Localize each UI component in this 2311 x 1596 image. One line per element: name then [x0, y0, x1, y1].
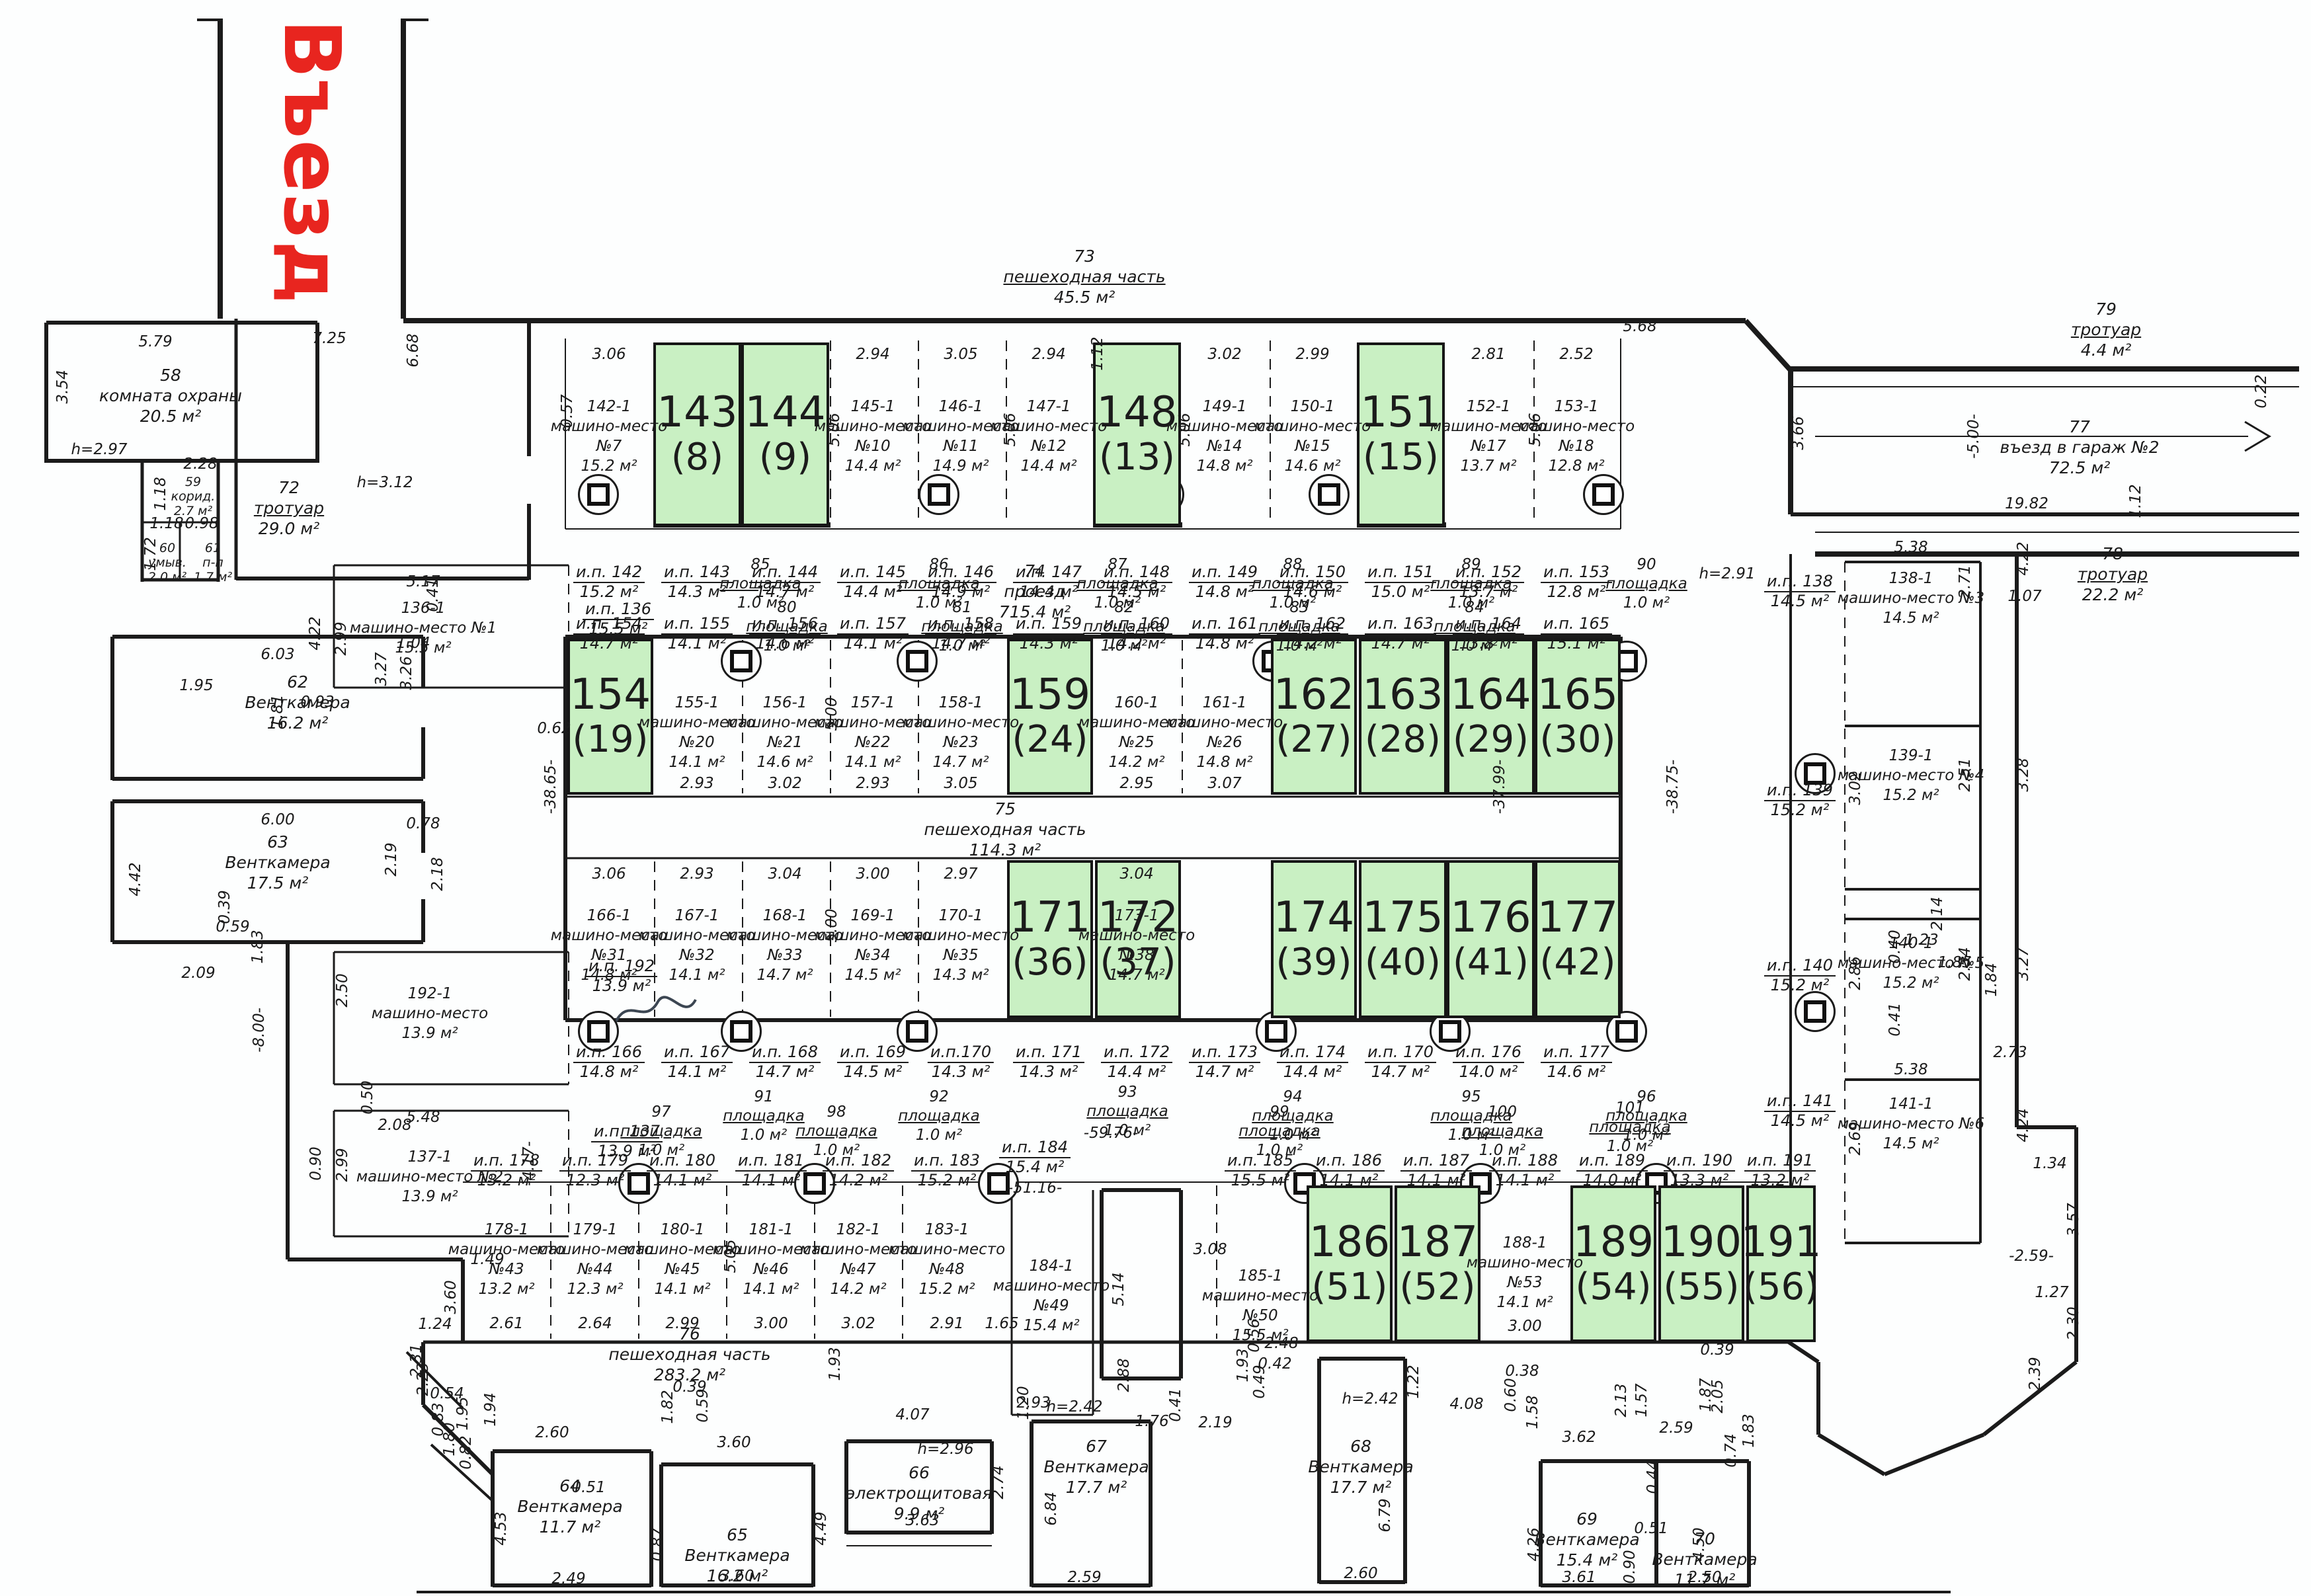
dimension-label: 4.24 — [2015, 1108, 2032, 1142]
callout-number: 88 — [1252, 555, 1333, 575]
dimension-label: 0.41 — [1167, 1388, 1184, 1421]
dimension-label: 2.39 — [2027, 1357, 2044, 1390]
callout-area: 1.0 м² — [1430, 594, 1512, 613]
ip-area: 14.8 м² — [573, 1063, 645, 1081]
dimension-label: 1.95 — [179, 677, 213, 694]
space-label-line: 14.3 м² — [903, 965, 1019, 985]
parking-space-162[interactable]: 162(27) — [1271, 639, 1357, 795]
ip-label-183: и.п. 18315.2 м² — [911, 1152, 983, 1189]
callout-number: 93 — [1086, 1083, 1168, 1102]
space-alt-number: (36) — [1012, 941, 1088, 984]
dimension-label: 0.41 — [1886, 1002, 1904, 1036]
callout-word: площадка — [1434, 618, 1515, 637]
dimension-label: h=2.96 — [917, 1441, 973, 1458]
dimension-label: 2.73 — [1993, 1044, 2027, 1061]
dimension-label: 4.22 — [2015, 541, 2032, 575]
zone-name: пешеходная часть — [1003, 266, 1165, 287]
ip-label-191: и.п. 19113.2 м² — [1744, 1152, 1816, 1189]
zone-name: тротуар — [254, 498, 324, 518]
callout-word: площадка — [723, 1107, 804, 1126]
dimension-label: h=2.42 — [1342, 1390, 1398, 1408]
dimension-label: 5.17 — [406, 573, 440, 590]
column-square-icon — [1318, 483, 1340, 506]
zone-label-72: 72тротуар29.0 м² — [254, 477, 324, 539]
callout-word: площадка — [620, 1122, 702, 1141]
ip-label-136: и.п. 13615.5 м² — [583, 600, 654, 638]
dimension-label: 1.76 — [1135, 1413, 1168, 1430]
ip-label-141: и.п. 14114.5 м² — [1764, 1092, 1836, 1130]
ip-number: и.п. 157 — [837, 615, 909, 635]
dimension-label: 1.94 — [482, 1392, 499, 1426]
dimension-label: -2.59- — [2009, 1248, 2054, 1265]
dimension-label: 3.04 — [768, 865, 801, 883]
ip-number: и.п.170 — [928, 1043, 994, 1063]
column-marker-icon — [1309, 474, 1350, 515]
ip-area: 14.1 м² — [735, 1172, 807, 1189]
ip-label-139: и.п. 13915.2 м² — [1764, 781, 1836, 819]
parking-space-174[interactable]: 174(39) — [1271, 860, 1357, 1018]
zone-name: Венткамера — [1534, 1529, 1639, 1550]
space-label-line: №53 — [1467, 1273, 1583, 1293]
space-alt-number: (51) — [1312, 1265, 1388, 1309]
zone-name: въезд в гараж №2 — [2000, 437, 2159, 458]
zone-area: 20.5 м² — [99, 406, 242, 426]
callout-area: 1.0 м² — [1258, 637, 1340, 656]
ip-label-149: и.п. 14914.8 м² — [1189, 563, 1260, 601]
ip-area: 15.1 м² — [1541, 635, 1612, 653]
dimension-label: 2.93 — [856, 775, 889, 792]
zone-label-76: 76пешеходная часть283.2 м² — [608, 1324, 770, 1385]
dimension-label: 3.60 — [442, 1280, 460, 1314]
ip-area: 14.1 м² — [661, 635, 733, 653]
space-label-line: машино-место — [903, 926, 1019, 945]
ip-label-163: и.п. 16314.7 м² — [1365, 615, 1436, 653]
zone-label-62: 62Венткамера16.2 м² — [245, 672, 350, 733]
zone-area: 1.7 м² — [194, 570, 232, 584]
dimension-label: 1.58 — [1524, 1395, 1541, 1429]
callout-number: 89 — [1430, 555, 1512, 575]
ip-area: 14.0 м² — [1576, 1172, 1648, 1189]
dimension-label: 0.40 — [1886, 930, 1904, 963]
callout-area: 1.0 м² — [620, 1141, 702, 1160]
space-label-line: машино-место — [1078, 926, 1195, 945]
ip-area: 14.1 м² — [837, 635, 909, 653]
space-label-line: №38 — [1078, 945, 1195, 965]
zone-number: 64 — [517, 1476, 622, 1496]
parking-space-label-183-1: 183-1машино-место№4815.2 м² — [889, 1220, 1005, 1299]
space-label-line: 161-1 — [1166, 693, 1283, 713]
ip-label-170: и.п. 17014.7 м² — [1365, 1043, 1436, 1081]
callout-number: 86 — [898, 555, 979, 575]
dimension-label: 2.86 — [1847, 956, 1864, 990]
zone-number: 68 — [1308, 1436, 1413, 1456]
parking-space-175[interactable]: 175(40) — [1359, 860, 1447, 1018]
parking-space-176[interactable]: 176(41) — [1447, 860, 1535, 1018]
ip-area: 12.3 м² — [559, 1172, 631, 1189]
ip-number: и.п. 191 — [1744, 1152, 1816, 1172]
dimension-label: 5.00 — [823, 908, 840, 942]
ip-number: и.п. 168 — [749, 1043, 821, 1063]
space-number: 174 — [1274, 895, 1354, 941]
dimension-label: 0.56 — [1246, 1318, 1263, 1352]
column-square-icon — [1615, 1020, 1638, 1043]
dimension-label: 1.27 — [2035, 1284, 2068, 1301]
callout-area: 1.0 м² — [898, 1126, 979, 1145]
dimension-label: 0.59 — [694, 1388, 711, 1422]
callout-area: 1.0 м² — [921, 637, 1002, 656]
ip-label-176: и.п. 17614.0 м² — [1453, 1043, 1524, 1081]
space-label-line: 185-1 — [1202, 1266, 1318, 1286]
zone-number: 73 — [1003, 246, 1165, 266]
dimension-label: 2.14 — [1929, 897, 1946, 930]
space-label-line: машино-место — [903, 713, 1019, 733]
zone-area: 17.5 м² — [225, 873, 330, 893]
parking-space-165[interactable]: 165(30) — [1535, 639, 1621, 795]
dimension-label: 1.84 — [1983, 963, 2000, 996]
parking-space-191[interactable]: 191(56) — [1746, 1185, 1816, 1342]
space-alt-number: (39) — [1276, 941, 1352, 984]
dimension-label: 3.00 — [1508, 1318, 1541, 1335]
ip-area: 14.5 м² — [837, 1063, 909, 1081]
callout-area: 1.0 м² — [1461, 1141, 1543, 1160]
ip-number: и.п. 176 — [1453, 1043, 1524, 1063]
space-label-line: 12.8 м² — [1518, 456, 1635, 476]
ip-area: 15.5 м² — [583, 620, 654, 638]
dimension-label: 6.03 — [261, 646, 294, 663]
parking-space-label-170-1: 170-1машино-место№3514.3 м² — [903, 906, 1019, 985]
zone-name: Венткамера — [245, 692, 350, 713]
dimension-label: 3.28 — [2015, 758, 2032, 791]
parking-space-186[interactable]: 186(51) — [1307, 1185, 1393, 1342]
dimension-label: 2.81 — [1471, 346, 1505, 363]
ip-area: 14.1 м² — [661, 1063, 733, 1081]
ip-area: 14.3 м² — [1013, 1063, 1084, 1081]
zone-name: Венткамера — [225, 852, 330, 873]
dimension-label: 0.82 — [458, 1435, 475, 1469]
ip-number: и.п. 190 — [1664, 1152, 1735, 1172]
dimension-label: 5.38 — [1894, 539, 1927, 556]
dimension-label: 5.38 — [1894, 1061, 1927, 1078]
space-number: 177 — [1537, 895, 1618, 941]
zone-number: 58 — [99, 365, 242, 385]
dimension-label: 5.14 — [1110, 1272, 1127, 1306]
dimension-label: 4.08 — [1449, 1396, 1483, 1413]
zone-area: 17.7 м² — [1308, 1477, 1413, 1497]
space-number: 189 — [1573, 1219, 1654, 1265]
dimension-label: 6.68 — [405, 333, 422, 367]
wall-segment — [1885, 1435, 1984, 1474]
site-callout-90: 90площадка1.0 м² — [1605, 555, 1687, 613]
ip-label-186: и.п. 18614.1 м² — [1313, 1152, 1385, 1189]
column-square-icon — [1265, 1020, 1287, 1043]
ip-area: 14.3 м² — [1013, 635, 1084, 653]
dimension-label: 2.64 — [578, 1315, 612, 1332]
ip-number: и.п. 142 — [573, 563, 645, 583]
zone-label-68: 68Венткамера17.7 м² — [1308, 1436, 1413, 1497]
ip-label-172: и.п. 17214.4 м² — [1101, 1043, 1172, 1081]
dimension-label: 0.93 — [300, 694, 334, 711]
dimension-label: 2.23 — [415, 1362, 432, 1396]
ip-area: 13.3 м² — [1664, 1172, 1735, 1189]
ip-number: и.п. 173 — [1189, 1043, 1260, 1063]
zone-label-79: 79тротуар4.4 м² — [2071, 299, 2141, 360]
space-number: 191 — [1740, 1219, 1821, 1265]
zone-label-78: 78тротуар22.2 м² — [2078, 543, 2148, 605]
zone-number: 74 — [999, 561, 1071, 581]
parking-space-163[interactable]: 163(28) — [1359, 639, 1447, 795]
space-alt-number: (54) — [1576, 1265, 1652, 1309]
dimension-label: 2.95 — [1119, 775, 1153, 792]
ip-number: и.п. 161 — [1189, 615, 1260, 635]
zone-number: 61 — [194, 541, 232, 555]
ip-area: 15.2 м² — [1764, 977, 1836, 994]
callout-number: 99 — [1238, 1103, 1320, 1122]
space-alt-number: (40) — [1365, 941, 1441, 984]
parking-space-177[interactable]: 177(42) — [1535, 860, 1621, 1018]
zone-label-63: 63Венткамера17.5 м² — [225, 832, 330, 893]
ip-area: 14.6 м² — [1541, 1063, 1612, 1081]
column-square-icon — [587, 483, 610, 506]
parking-space-190[interactable]: 190(55) — [1658, 1185, 1744, 1342]
dimension-label: 5.68 — [1623, 318, 1656, 335]
space-label-line: №15 — [1254, 436, 1371, 456]
space-alt-number: (42) — [1540, 941, 1616, 984]
dimension-label: 0.57 — [559, 394, 576, 428]
ip-area: 13.9 м² — [586, 977, 657, 995]
dimension-label: 2.93 — [680, 775, 713, 792]
dimension-label: 0.87 — [649, 1527, 667, 1561]
ip-area: 15.0 м² — [1365, 583, 1436, 601]
dimension-label: 2.91 — [930, 1315, 963, 1332]
space-label-line: машино-место — [1254, 417, 1371, 436]
callout-number: 98 — [795, 1103, 877, 1122]
ip-number: и.п. 149 — [1189, 563, 1260, 583]
ip-label-157: и.п. 15714.1 м² — [837, 615, 909, 653]
ip-area: 14.7 м² — [1189, 1063, 1260, 1081]
ip-area: 14.1 м² — [1489, 1172, 1561, 1189]
dimension-label: 5.06 — [1527, 413, 1544, 446]
callout-word: площадка — [1258, 618, 1340, 637]
dimension-label: 6.84 — [1043, 1492, 1060, 1525]
space-label-line: 158-1 — [903, 693, 1019, 713]
ip-label-177: и.п. 17714.6 м² — [1541, 1043, 1612, 1081]
ip-area: 14.3 м² — [928, 1063, 994, 1081]
space-label-line: 14.8 м² — [1166, 752, 1283, 772]
zone-name: пешеходная часть — [608, 1344, 770, 1365]
ip-number: и.п. 163 — [1365, 615, 1436, 635]
site-callout-92: 92площадка1.0 м² — [898, 1088, 979, 1145]
dimension-label: 1.93 — [1235, 1348, 1252, 1382]
site-callout-85: 85площадка1.0 м² — [719, 555, 801, 613]
space-label-line: 183-1 — [889, 1220, 1005, 1240]
dimension-label: 6.79 — [1377, 1498, 1394, 1532]
ip-label-170: и.п.17014.3 м² — [928, 1043, 994, 1081]
callout-number: 92 — [898, 1088, 979, 1107]
dimension-label: -51.16- — [1008, 1179, 1062, 1197]
dimension-label: 3.27 — [2015, 947, 2032, 980]
space-label-line: 15.2 м² — [551, 456, 667, 476]
dimension-label: 2.49 — [551, 1570, 585, 1587]
zone-number: 79 — [2071, 299, 2141, 319]
column-square-icon — [730, 1020, 752, 1043]
column-marker-icon — [578, 474, 619, 515]
space-label-line: 14.7 м² — [1078, 965, 1195, 985]
zone-area: 114.3 м² — [924, 840, 1086, 860]
dimension-label: 0.39 — [1700, 1341, 1734, 1359]
dimension-label: 0.59 — [216, 918, 249, 936]
dimension-label: 2.30 — [2065, 1306, 2082, 1340]
dimension-label: 3.63 — [905, 1512, 939, 1529]
ip-number: и.п. 174 — [1277, 1043, 1348, 1063]
dimension-label: h=2.97 — [71, 441, 127, 458]
space-number: 186 — [1309, 1219, 1390, 1265]
space-label-line: №48 — [889, 1259, 1005, 1279]
dimension-label: 2.19 — [1198, 1414, 1232, 1431]
column-square-icon — [906, 1020, 928, 1043]
space-label-line: 184-1 — [993, 1256, 1110, 1276]
callout-word: площадка — [1076, 575, 1158, 594]
callout-word: площадка — [898, 575, 979, 594]
zone-name: Венткамера — [517, 1496, 622, 1517]
dimension-label: 2.99 — [1295, 346, 1329, 363]
zone-name: Венткамера — [1043, 1456, 1149, 1477]
ip-area: 15.2 м² — [1764, 801, 1836, 819]
space-label-line: 188-1 — [1467, 1233, 1583, 1253]
ip-label-151: и.п. 15115.0 м² — [1365, 563, 1436, 601]
zone-name: Венткамера — [684, 1545, 790, 1566]
dimension-label: 3.62 — [1562, 1429, 1596, 1446]
ip-number: и.п. 192 — [586, 957, 657, 977]
ip-label-168: и.п. 16814.7 м² — [749, 1043, 821, 1081]
dimension-label: 2.05 — [1709, 1379, 1726, 1413]
ip-area: 14.5 м² — [1764, 592, 1836, 610]
dimension-label: 3.06 — [592, 346, 626, 363]
ip-label-165: и.п. 16515.1 м² — [1541, 615, 1612, 653]
dimension-label: 2.50 — [334, 973, 351, 1007]
zone-area: 45.5 м² — [1003, 287, 1165, 307]
zone-name: пешеходная часть — [924, 819, 1086, 840]
space-number: 190 — [1661, 1219, 1742, 1265]
dimension-label: -4.17- — [520, 1141, 538, 1186]
dimension-label: 3.02 — [841, 1315, 875, 1332]
ip-label-173: и.п. 17314.7 м² — [1189, 1043, 1260, 1081]
callout-number: 91 — [723, 1088, 804, 1107]
ip-label-153: и.п. 15312.8 м² — [1541, 563, 1612, 601]
ip-label-169: и.п. 16914.5 м² — [837, 1043, 909, 1081]
ip-label-167: и.п. 16714.1 м² — [661, 1043, 733, 1081]
zone-label-61: 61п-п1.7 м² — [194, 541, 232, 584]
dimension-label: 1.65 — [985, 1315, 1018, 1332]
ip-label-174: и.п. 17414.4 м² — [1277, 1043, 1348, 1081]
space-label-line: машино-место — [1166, 713, 1283, 733]
dimension-label: 5.48 — [406, 1109, 440, 1126]
callout-number: 97 — [620, 1103, 702, 1122]
zone-area: 22.2 м² — [2078, 584, 2148, 605]
dimension-label: 2.13 — [1613, 1383, 1630, 1417]
dimension-label: 1.22 — [1405, 1365, 1422, 1398]
space-alt-number: (8) — [671, 436, 723, 479]
zone-number: 67 — [1043, 1436, 1149, 1456]
ip-area: 14.0 м² — [1453, 1063, 1524, 1081]
dimension-label: 3.05 — [944, 775, 977, 792]
dimension-label: 2.59 — [1067, 1569, 1101, 1586]
ip-number: и.п. 140 — [1764, 957, 1836, 977]
ip-label-138: и.п. 13814.5 м² — [1764, 573, 1836, 610]
callout-word: площадка — [1238, 1122, 1320, 1141]
dimension-label: 0.74 — [1723, 1433, 1740, 1467]
dimension-label: 1.83 — [249, 930, 266, 963]
zone-label-67: 67Венткамера17.7 м² — [1043, 1436, 1149, 1497]
dimension-label: 2.99 — [333, 621, 350, 655]
dimension-label: 2.61 — [489, 1315, 523, 1332]
zone-area: 16.2 м² — [245, 713, 350, 733]
dimension-label: 0.38 — [1505, 1363, 1539, 1380]
space-label-line: 136-1 — [350, 598, 497, 618]
dimension-label: 1.18 — [152, 477, 169, 510]
ip-number: и.п. 172 — [1101, 1043, 1172, 1063]
ip-area: 15.2 м² — [573, 583, 645, 601]
space-number: 143 — [657, 389, 737, 436]
dimension-label: 2.60 — [1344, 1565, 1377, 1582]
space-label-line: №35 — [903, 945, 1019, 965]
space-label-line: 14.5 м² — [1838, 608, 1984, 628]
space-number: 164 — [1450, 672, 1531, 718]
dimension-label: 3.00 — [856, 865, 889, 883]
space-label-line: машино-место — [993, 1276, 1110, 1296]
callout-area: 1.0 м² — [795, 1141, 877, 1160]
site-callout-97: 97площадка1.0 м² — [620, 1103, 702, 1160]
space-label-line: 14.6 м² — [1254, 456, 1371, 476]
zone-name: электрощитовая — [846, 1483, 993, 1503]
callout-word: площадка — [1083, 618, 1164, 637]
callout-area: 1.0 м² — [1238, 1141, 1320, 1160]
zone-number: 78 — [2078, 543, 2148, 564]
dimension-label: 1.83 — [1740, 1414, 1758, 1447]
parking-space-label-173-1: 173-1машино-место№3814.7 м² — [1078, 906, 1195, 985]
space-alt-number: (19) — [573, 718, 649, 762]
space-label-line: №49 — [993, 1296, 1110, 1316]
dimension-label: 3.07 — [1207, 775, 1241, 792]
dimension-label: -37.99- — [1491, 760, 1508, 814]
zone-name: п-п — [194, 555, 232, 570]
ip-area: 14.2 м² — [823, 1172, 894, 1189]
dimension-label: 2.74 — [990, 1465, 1007, 1499]
ip-area: 14.1 м² — [1313, 1172, 1385, 1189]
dimension-label: 0.22 — [2253, 374, 2270, 408]
column-marker-icon — [1583, 474, 1624, 515]
zone-name: тротуар — [2078, 564, 2148, 584]
site-callout-99: 99площадка1.0 м² — [1238, 1103, 1320, 1160]
site-callout-86: 86площадка1.0 м² — [898, 555, 979, 613]
space-label-line: №26 — [1166, 733, 1283, 752]
site-callout-100: 100площадка1.0 м² — [1461, 1103, 1543, 1160]
ip-number: и.п. 165 — [1541, 615, 1612, 635]
ip-area: 14.7 м² — [1365, 635, 1436, 653]
dimension-label: 2.94 — [856, 346, 889, 363]
dimension-label: h=2.91 — [1699, 565, 1755, 582]
column-square-icon — [1439, 1020, 1461, 1043]
dimension-label: 3.08 — [1193, 1241, 1227, 1258]
parking-space-189[interactable]: 189(54) — [1570, 1185, 1656, 1342]
dimension-label: h=2.42 — [1046, 1398, 1102, 1416]
zone-number: 63 — [225, 832, 330, 852]
zone-name: тротуар — [2071, 319, 2141, 340]
wall-segment — [1818, 1435, 1885, 1474]
space-number: 144 — [745, 389, 825, 436]
ip-area: 12.8 м² — [1541, 583, 1612, 601]
dimension-label: 3.02 — [1847, 771, 1864, 805]
zone-label-73: 73пешеходная часть45.5 м² — [1003, 246, 1165, 307]
